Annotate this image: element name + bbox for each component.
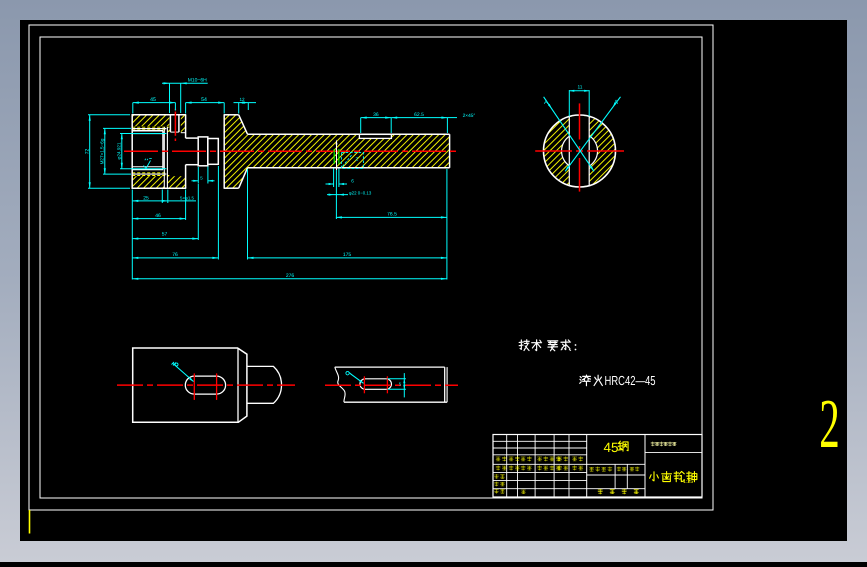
svg-text:276: 276 [286, 273, 295, 279]
svg-text:1:25: 1:25 [683, 479, 693, 485]
svg-text:M10−6H: M10−6H [188, 77, 207, 83]
svg-text:54: 54 [201, 97, 207, 103]
svg-text:11: 11 [578, 85, 583, 91]
svg-text:Z: Z [356, 157, 359, 162]
svg-text:36: 36 [373, 112, 379, 118]
svg-text:175: 175 [343, 252, 352, 258]
svg-text:HRC42—45: HRC42—45 [605, 373, 656, 388]
svg-text:76.5: 76.5 [387, 212, 397, 218]
svg-text:46: 46 [155, 213, 161, 219]
svg-text:62.5: 62.5 [414, 112, 424, 118]
svg-text:φ22 0−0.13: φ22 0−0.13 [349, 190, 372, 195]
svg-text:A: A [544, 99, 548, 106]
svg-text:6: 6 [351, 178, 354, 183]
svg-text:2: 2 [819, 386, 840, 463]
svg-text:57: 57 [162, 232, 168, 238]
svg-text:76: 76 [172, 252, 178, 258]
svg-text:12: 12 [239, 97, 245, 102]
svg-text:5×φ1.5: 5×φ1.5 [180, 195, 195, 200]
svg-text:A: A [614, 99, 618, 106]
svg-text:25: 25 [143, 195, 149, 201]
svg-text:72: 72 [85, 149, 91, 155]
svg-text:45: 45 [150, 97, 156, 103]
svg-text:45: 45 [604, 440, 619, 455]
svg-text:φ24.921: φ24.921 [116, 142, 121, 159]
svg-text:2×45°: 2×45° [463, 113, 476, 119]
svg-text:M27×1.5−6g: M27×1.5−6g [100, 138, 105, 164]
